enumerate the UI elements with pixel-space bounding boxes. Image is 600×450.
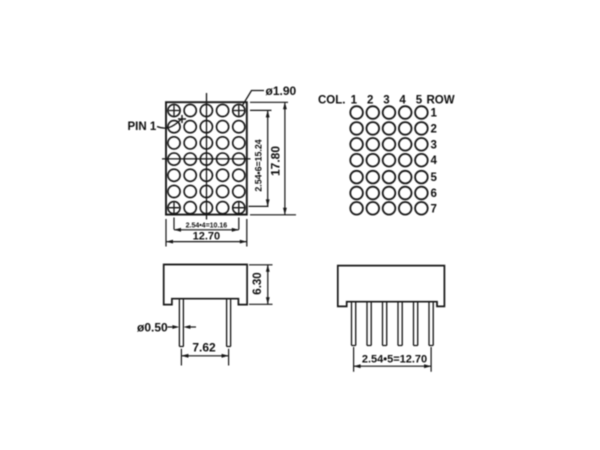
svg-text:2: 2 <box>367 95 373 107</box>
svg-text:6: 6 <box>431 188 437 200</box>
svg-text:1: 1 <box>351 95 358 107</box>
svg-text:4: 4 <box>399 95 406 107</box>
svg-text:PIN 1: PIN 1 <box>128 121 157 133</box>
svg-text:2.54•6=15.24: 2.54•6=15.24 <box>254 139 264 191</box>
svg-text:ROW: ROW <box>427 95 455 107</box>
svg-text:2: 2 <box>431 123 437 135</box>
svg-text:4: 4 <box>431 155 438 167</box>
svg-text:7.62: 7.62 <box>192 341 216 355</box>
svg-text:7: 7 <box>431 203 437 215</box>
svg-text:1: 1 <box>431 108 438 120</box>
svg-text:ø0.50: ø0.50 <box>137 321 168 335</box>
svg-text:6.30: 6.30 <box>252 272 264 294</box>
svg-text:COL.: COL. <box>318 95 345 107</box>
svg-text:3: 3 <box>383 95 389 107</box>
svg-text:2.54•5=12.70: 2.54•5=12.70 <box>362 354 427 366</box>
svg-text:5: 5 <box>431 172 438 184</box>
svg-text:2.54•4=10.16: 2.54•4=10.16 <box>186 223 228 230</box>
svg-text:12.70: 12.70 <box>193 230 221 242</box>
svg-text:17.80: 17.80 <box>269 146 283 176</box>
svg-text:5: 5 <box>416 95 423 107</box>
svg-text:3: 3 <box>431 139 437 151</box>
svg-text:ø1.90: ø1.90 <box>266 84 297 98</box>
